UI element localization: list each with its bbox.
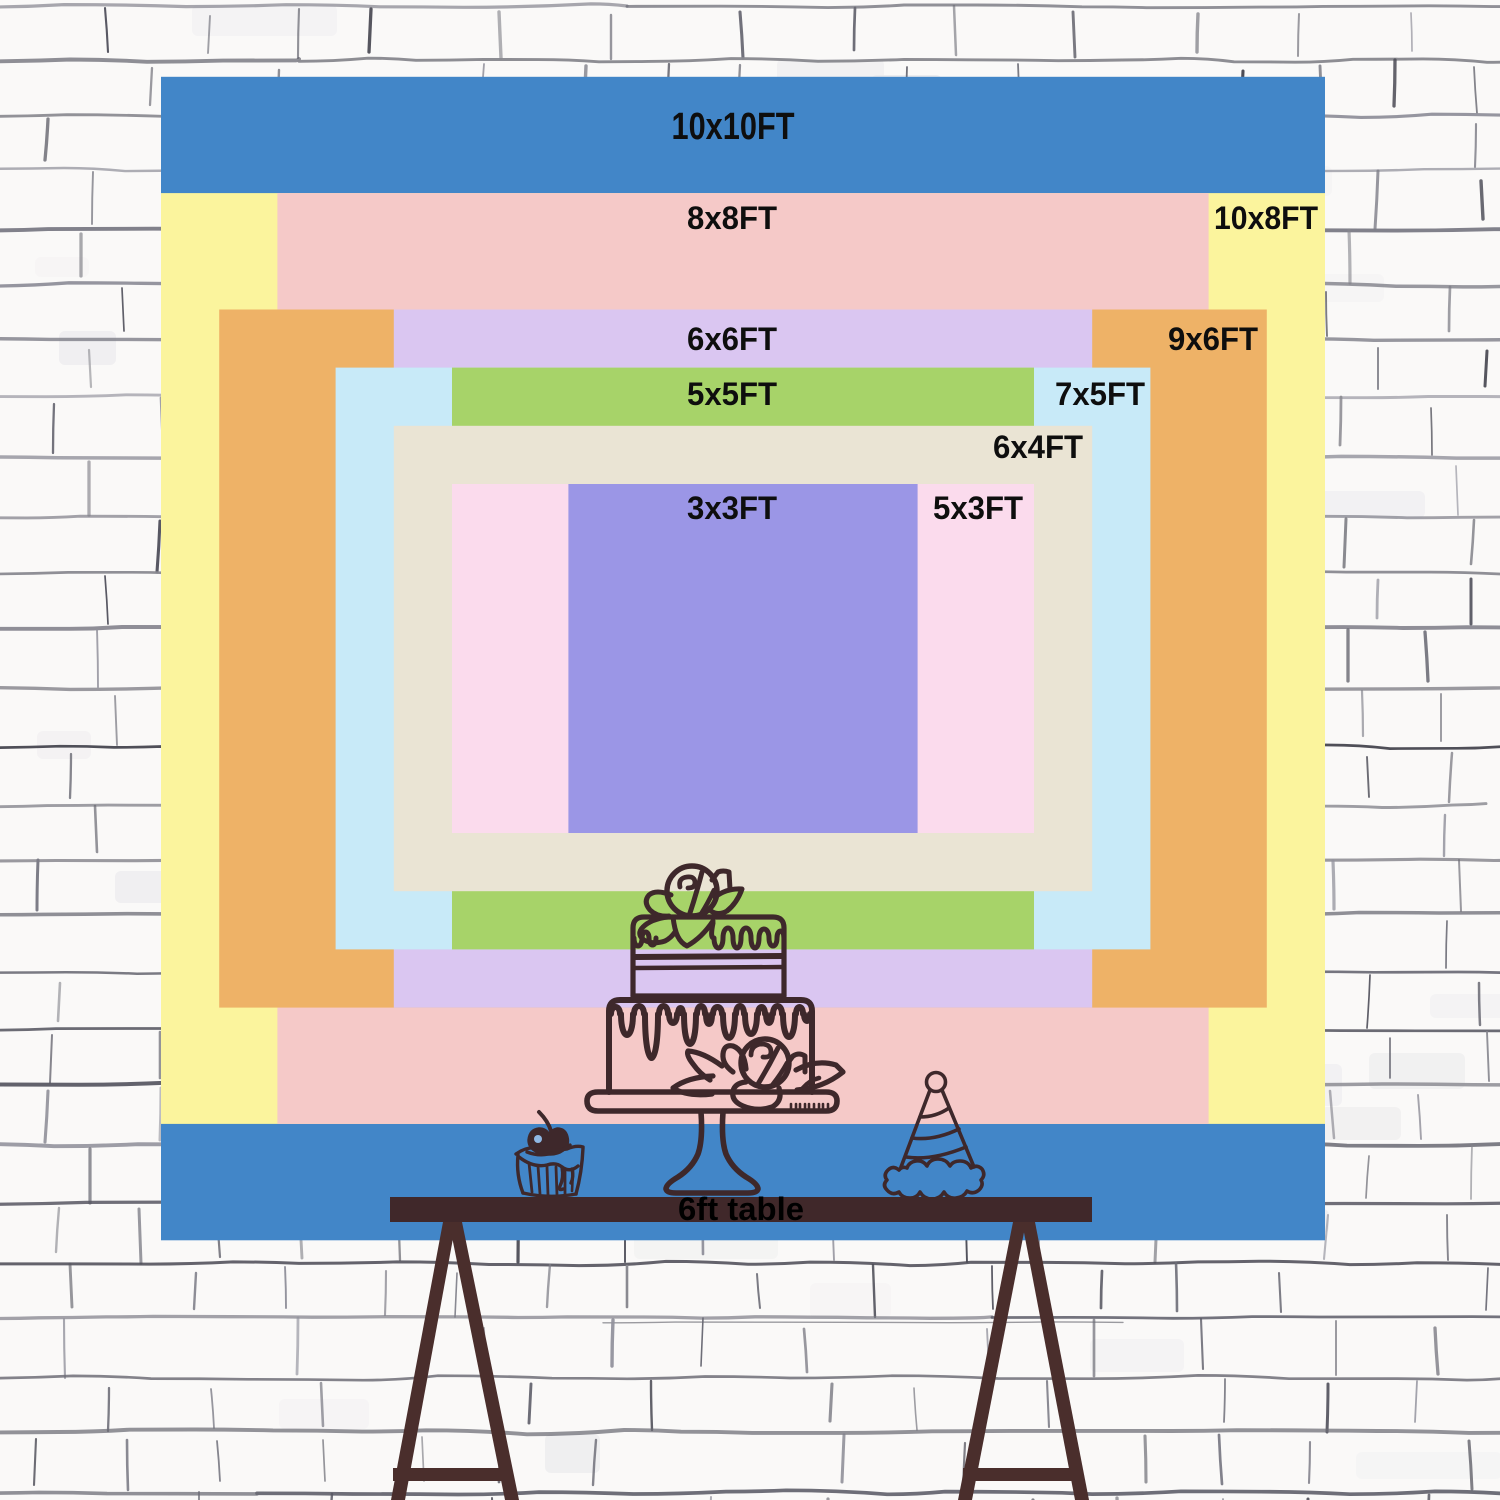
svg-text:8x8FT: 8x8FT (687, 200, 777, 236)
svg-text:6x4FT: 6x4FT (993, 429, 1083, 465)
svg-text:9x6FT: 9x6FT (1168, 321, 1258, 357)
svg-text:10x10FT: 10x10FT (672, 106, 795, 148)
svg-text:5x3FT: 5x3FT (933, 490, 1023, 526)
svg-text:7x5FT: 7x5FT (1055, 376, 1145, 412)
svg-text:3x3FT: 3x3FT (687, 490, 777, 526)
svg-text:6x6FT: 6x6FT (687, 321, 777, 357)
svg-text:6ft table: 6ft table (678, 1191, 804, 1227)
svg-text:5x5FT: 5x5FT (687, 376, 777, 412)
svg-text:10x8FT: 10x8FT (1214, 200, 1318, 236)
